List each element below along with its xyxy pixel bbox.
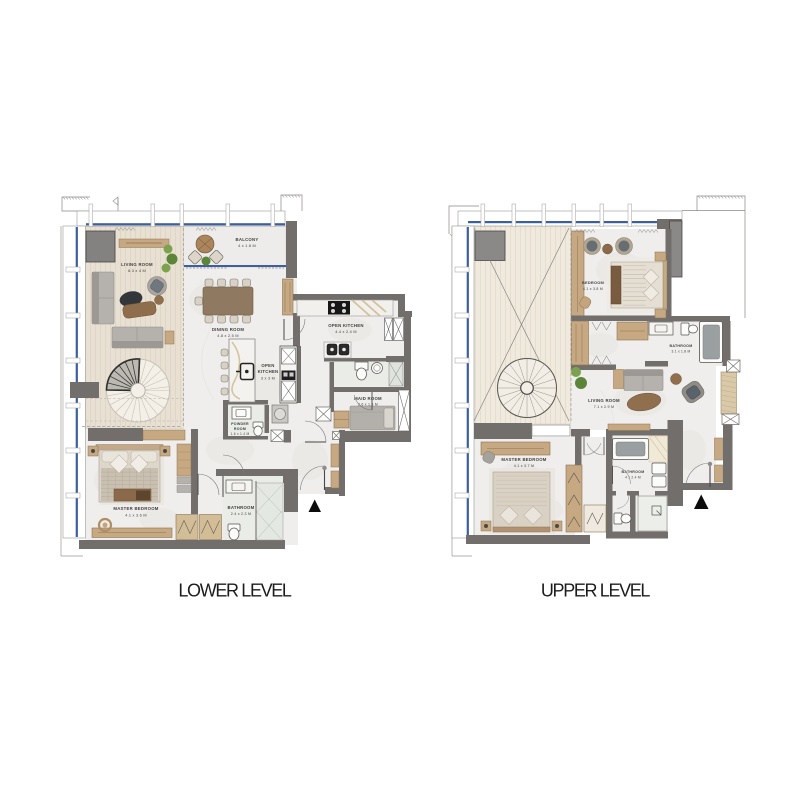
svg-text:4.1 x 3.6 M: 4.1 x 3.6 M: [125, 514, 147, 518]
svg-text:BALCONY: BALCONY: [236, 237, 259, 242]
svg-text:3.1 x 1.8 M: 3.1 x 1.8 M: [671, 350, 690, 354]
svg-text:DINING ROOM: DINING ROOM: [212, 327, 245, 332]
svg-text:OPEN KITCHEN: OPEN KITCHEN: [328, 323, 363, 328]
svg-text:LIVING ROOM: LIVING ROOM: [588, 398, 620, 403]
svg-text:3 x 3 M: 3 x 3 M: [261, 377, 275, 381]
svg-text:1.6 x 1.4 M: 1.6 x 1.4 M: [230, 432, 249, 436]
svg-text:4.1 x 3.8 M: 4.1 x 3.8 M: [583, 287, 603, 291]
svg-text:MASTER BEDROOM: MASTER BEDROOM: [501, 457, 546, 462]
svg-text:7.1 x 2.9 M: 7.1 x 2.9 M: [594, 405, 615, 409]
svg-text:KITCHEN: KITCHEN: [258, 369, 279, 374]
svg-text:MAID ROOM: MAID ROOM: [354, 396, 382, 401]
svg-text:LIVING ROOM: LIVING ROOM: [121, 262, 153, 267]
svg-text:BEDROOM: BEDROOM: [582, 280, 604, 285]
svg-text:MASTER BEDROOM: MASTER BEDROOM: [113, 506, 158, 511]
svg-text:BATHROOM: BATHROOM: [670, 344, 693, 348]
svg-text:4.8 x 2.5 M: 4.8 x 2.5 M: [217, 334, 239, 338]
svg-text:OPEN: OPEN: [261, 363, 274, 368]
svg-text:4 x 1.8 M: 4 x 1.8 M: [238, 244, 256, 248]
svg-text:4.1 x 3.7 M: 4.1 x 3.7 M: [514, 464, 535, 468]
svg-text:BATHROOM: BATHROOM: [622, 470, 645, 474]
svg-text:LOWER LEVEL: LOWER LEVEL: [178, 581, 292, 601]
svg-text:8.3 x 4 M: 8.3 x 4 M: [128, 269, 146, 273]
svg-text:2.4 x 2.3 M: 2.4 x 2.3 M: [231, 512, 252, 516]
svg-text:UPPER LEVEL: UPPER LEVEL: [541, 581, 651, 601]
svg-text:4.4 x 2.4 M: 4.4 x 2.4 M: [335, 330, 357, 334]
svg-text:POWDER: POWDER: [231, 422, 249, 426]
svg-text:4 x 2.4 M: 4 x 2.4 M: [625, 476, 641, 480]
svg-text:ROOM: ROOM: [234, 427, 246, 431]
svg-text:BATHROOM: BATHROOM: [228, 505, 255, 510]
